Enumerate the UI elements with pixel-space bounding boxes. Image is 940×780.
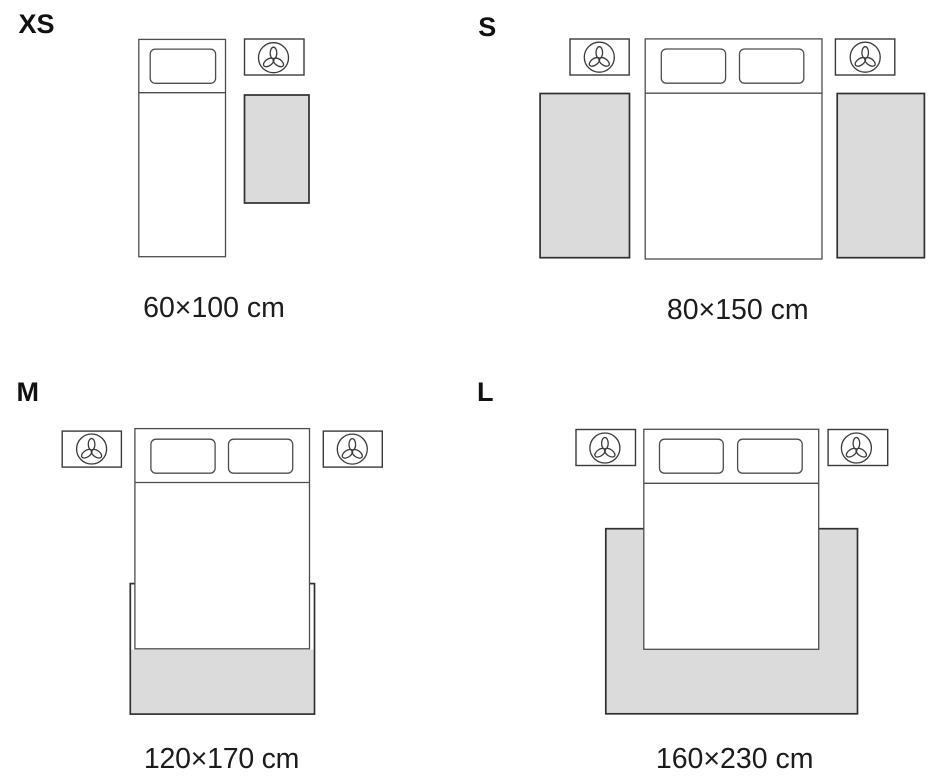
svg-text:L: L bbox=[477, 377, 494, 407]
svg-text:60×100 cm: 60×100 cm bbox=[143, 292, 285, 324]
svg-text:XS: XS bbox=[19, 9, 55, 39]
svg-text:160×230 cm: 160×230 cm bbox=[656, 743, 814, 775]
svg-text:120×170 cm: 120×170 cm bbox=[144, 743, 299, 775]
svg-text:M: M bbox=[17, 377, 40, 407]
svg-text:S: S bbox=[478, 12, 496, 42]
svg-text:80×150 cm: 80×150 cm bbox=[667, 294, 809, 326]
